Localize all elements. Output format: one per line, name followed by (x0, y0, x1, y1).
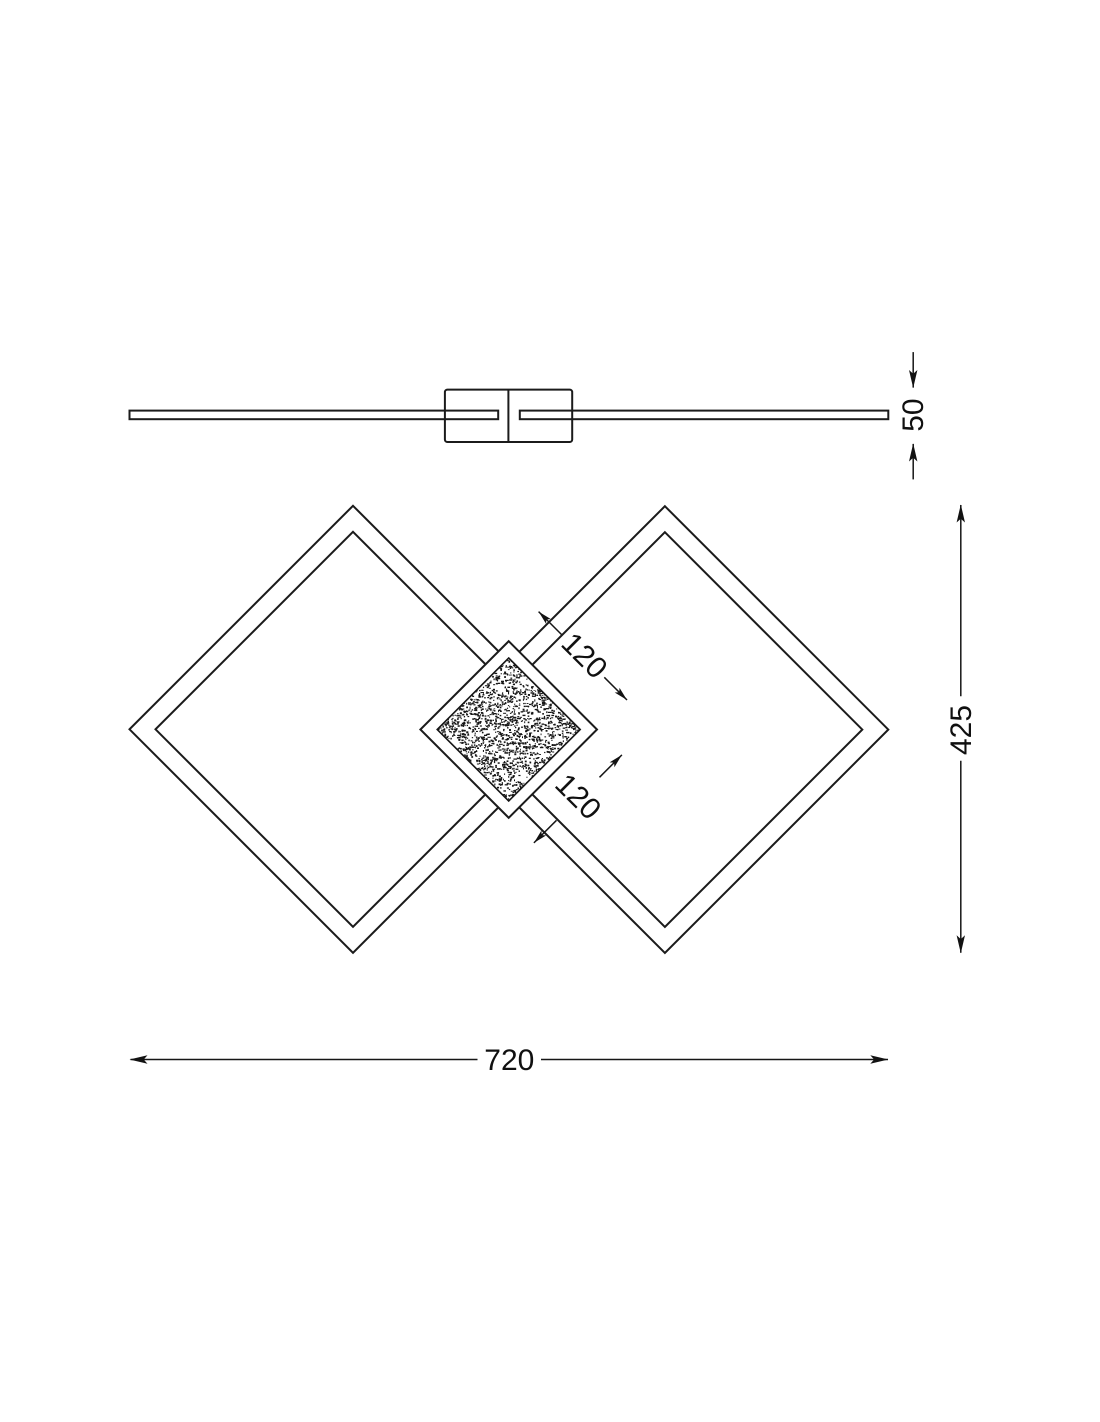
svg-text:720: 720 (484, 1044, 534, 1077)
svg-text:50: 50 (897, 398, 930, 431)
svg-text:425: 425 (945, 705, 978, 755)
